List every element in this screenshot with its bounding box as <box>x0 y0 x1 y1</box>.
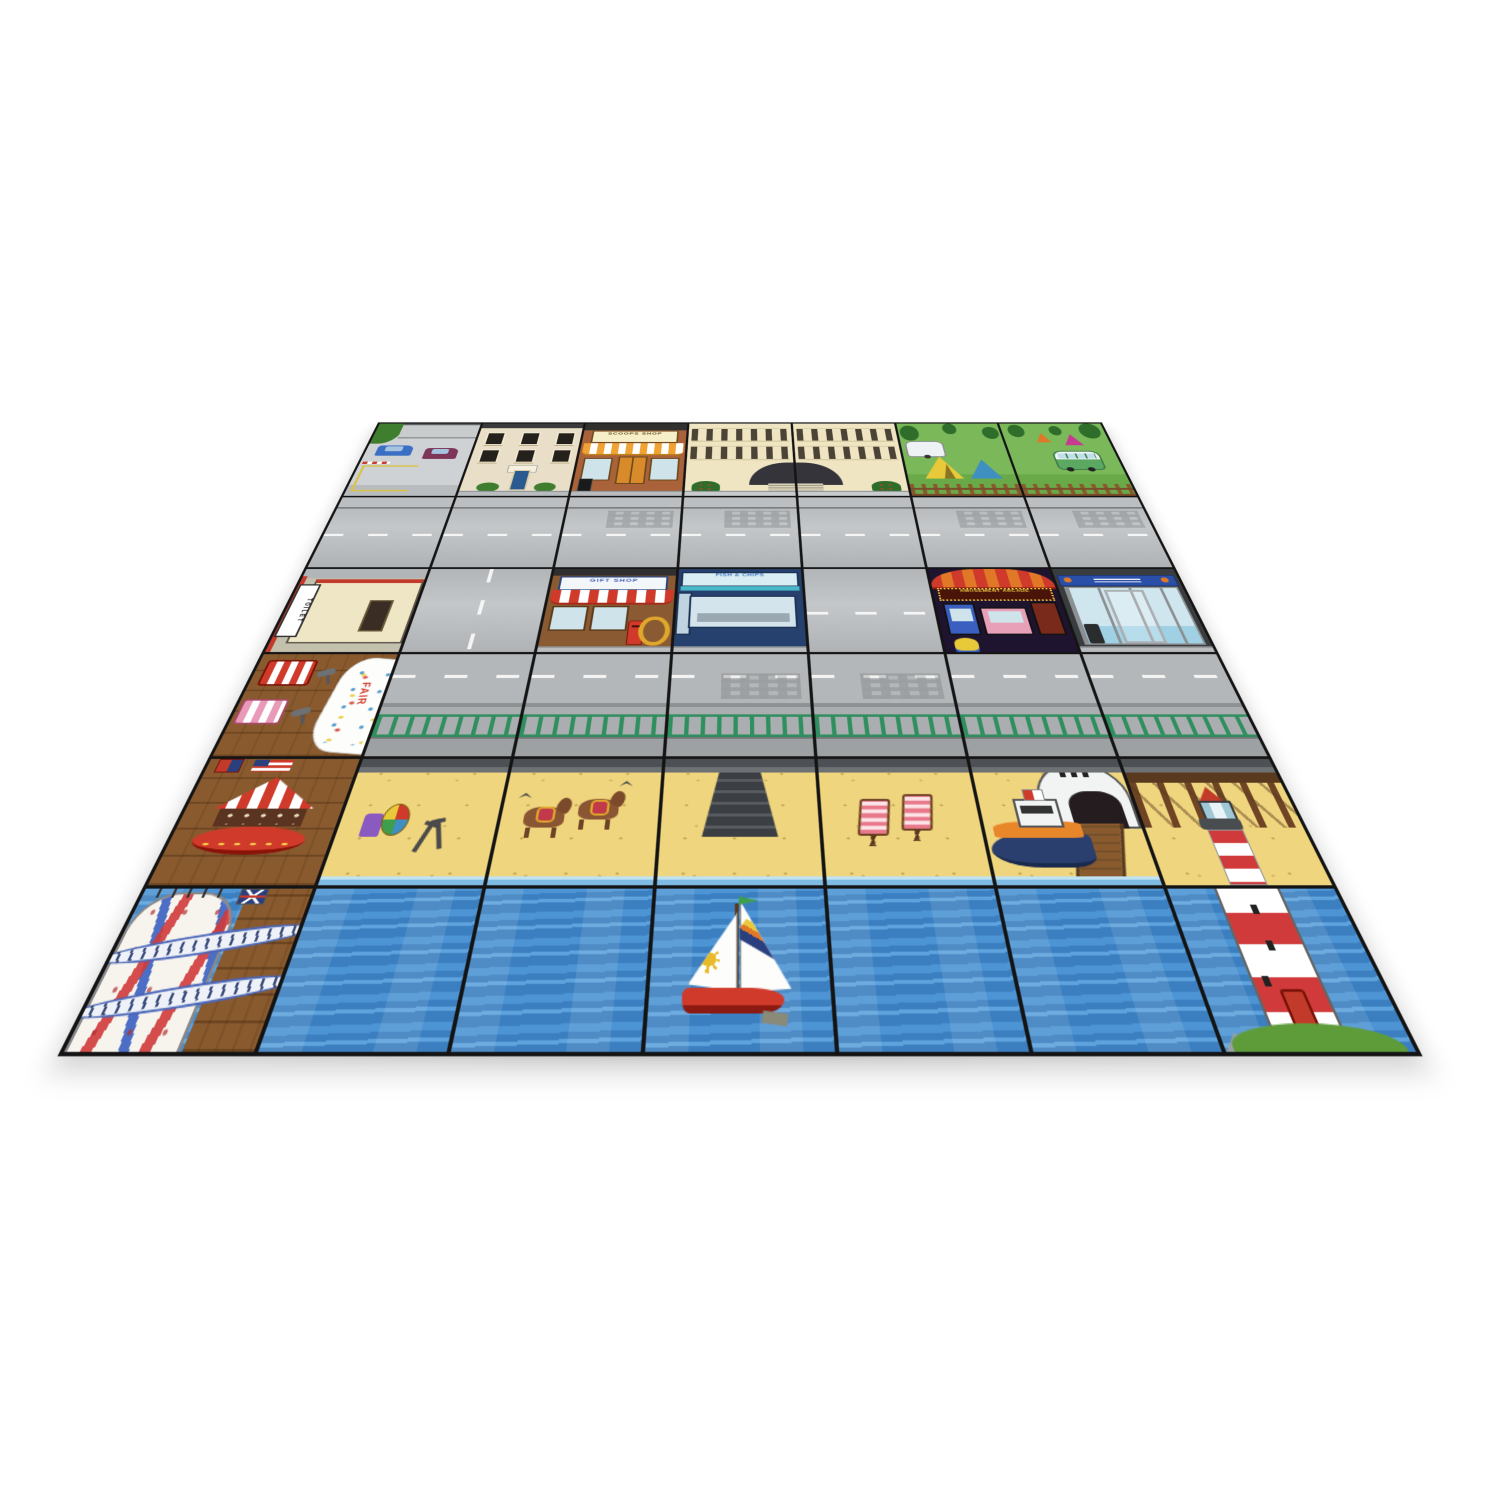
campsite-fence <box>909 484 1023 496</box>
lighthouse-gallery <box>1198 818 1244 829</box>
lifeboat-flag <box>1021 789 1045 801</box>
tile-sea <box>827 889 1028 1052</box>
seagull <box>518 792 533 799</box>
tile-road-promenade <box>666 654 814 756</box>
double-doors <box>615 457 648 484</box>
seaside-town-mat: SCOOPS SHOP <box>57 422 1422 1056</box>
road-markings <box>562 534 679 536</box>
flag-poles <box>155 889 226 898</box>
shop-window <box>547 606 589 631</box>
promenade-railing <box>667 714 812 737</box>
donkey <box>576 799 619 820</box>
telescope <box>291 707 311 718</box>
mat-wrapper: SCOOPS SHOP <box>267 236 1207 1042</box>
tile-road <box>432 497 568 567</box>
parking-bay-lines <box>350 465 419 491</box>
tile-road <box>308 497 454 567</box>
tile-toilet-block: TOILET <box>265 569 428 652</box>
saddle <box>589 800 609 816</box>
tile-road-junction <box>401 569 552 652</box>
lighthouse-column <box>1206 829 1268 886</box>
tree <box>940 424 957 435</box>
promenade-steps <box>702 770 778 836</box>
deck-chair <box>858 799 891 836</box>
window <box>519 432 541 445</box>
life-ring <box>637 616 670 646</box>
tile-sea <box>451 889 652 1052</box>
tile-road <box>556 497 682 567</box>
glass-shopfront <box>1063 587 1206 645</box>
blue-front-door <box>508 470 531 490</box>
tile-fish-and-chips: FISH & CHIPS <box>673 569 806 652</box>
road-markings <box>951 675 1088 678</box>
gift-shop-sign: GIFT SHOP <box>558 577 669 591</box>
scoops-shop-sign: SCOOPS SHOP <box>590 431 678 443</box>
road-markings <box>920 534 1037 536</box>
deck-chair <box>902 794 934 830</box>
tree <box>1006 425 1027 437</box>
road-markings <box>392 675 529 678</box>
spade <box>411 821 435 852</box>
hotel-steps <box>768 483 795 490</box>
sun-motif <box>697 946 720 974</box>
lifeboat-hull <box>989 834 1101 868</box>
tree <box>1047 426 1063 435</box>
red-striped-stall <box>256 660 319 686</box>
tile-road <box>1026 497 1172 567</box>
window <box>477 449 500 462</box>
road-markings <box>466 569 494 652</box>
orange-striped-awning <box>582 443 684 455</box>
lifeboat-cabin <box>1012 799 1065 828</box>
camper-van <box>1051 451 1107 470</box>
rudder <box>761 1011 788 1027</box>
promenade-railing <box>519 714 666 737</box>
promenade-railing <box>1104 714 1257 737</box>
parked-car-maroon <box>421 448 459 459</box>
road-markings <box>443 534 560 536</box>
carousel-canopy <box>214 777 325 808</box>
donkey <box>522 806 566 827</box>
arcade-canopy <box>928 569 1057 590</box>
road-markings <box>801 534 918 536</box>
hotel-garden <box>871 481 902 492</box>
shop-window <box>648 458 679 481</box>
tile-beach-steps <box>657 759 823 886</box>
rainbow-sail <box>740 901 792 993</box>
tile-beach-donkeys <box>487 759 662 886</box>
tile-road-promenade <box>515 654 670 756</box>
hotel-windows <box>691 428 788 442</box>
window <box>554 432 576 445</box>
tile-hotel-right <box>793 424 909 496</box>
duck-kiddie-ride <box>953 638 980 651</box>
hotel-windows <box>690 446 790 460</box>
chalkboard <box>576 479 593 492</box>
tile-scoops-shop: SCOOPS SHOP <box>571 424 687 496</box>
shop-window <box>579 458 612 481</box>
pink-striped-stall <box>231 699 290 725</box>
yellow-tent <box>920 457 964 479</box>
pennant-flag <box>738 896 758 905</box>
blue-tent <box>965 459 1003 478</box>
tree <box>898 426 920 441</box>
campsite-fence <box>1021 484 1137 496</box>
sun-sail <box>688 912 738 991</box>
tile-travel-shop <box>1052 569 1215 652</box>
fascia-band <box>680 586 800 591</box>
heraldic-flag <box>214 759 245 772</box>
lighthouse-tower <box>1211 889 1346 1036</box>
window <box>550 449 572 462</box>
caravan <box>904 441 947 457</box>
seagull <box>619 780 633 787</box>
carousel-base <box>186 826 310 854</box>
road-markings <box>682 534 799 536</box>
bush <box>475 483 500 492</box>
shop-roof <box>554 569 677 576</box>
tile-hotel-left <box>684 424 795 496</box>
entrance-canopy <box>749 462 796 485</box>
parked-car-blue <box>374 445 415 456</box>
car-park-wall <box>397 424 481 439</box>
bush <box>533 483 557 492</box>
hotel-steps <box>793 483 824 490</box>
fish-and-chips-sign: FISH & CHIPS <box>680 572 799 587</box>
pink-tent <box>1060 434 1084 445</box>
car-park-barrier <box>362 462 391 464</box>
fair-banner-text: FAIR <box>354 682 373 705</box>
telescope <box>317 667 336 677</box>
hotel-garden <box>691 481 720 492</box>
road-markings <box>1090 675 1228 678</box>
arcade-machine <box>943 604 983 636</box>
road-markings <box>807 612 935 615</box>
tile-sailboat <box>645 889 834 1052</box>
tile-road <box>803 569 942 652</box>
tile-campsite-2 <box>999 424 1136 496</box>
road-markings <box>532 675 669 678</box>
arcade-machine <box>1029 602 1067 635</box>
travel-shop-fascia <box>1056 575 1179 586</box>
window <box>484 432 507 445</box>
tile-road <box>912 497 1048 567</box>
tile-gift-shop: GIFT SHOP <box>537 569 676 652</box>
hotel-windows <box>798 446 899 460</box>
tile-road-promenade <box>810 654 965 756</box>
jetty-deck <box>1126 773 1281 784</box>
saddle <box>535 807 556 823</box>
arcade-machine <box>979 607 1035 635</box>
tile-beach-deckchairs <box>817 759 992 886</box>
beach-ball <box>376 804 413 836</box>
road-markings <box>1039 534 1157 536</box>
promenade-railing <box>814 714 961 737</box>
promenade-railing <box>371 714 521 737</box>
product-photo: SCOOPS SHOP <box>0 0 1500 1500</box>
tile-road <box>798 497 924 567</box>
spade <box>435 819 441 850</box>
promenade-railing <box>959 714 1109 737</box>
striped-flag <box>250 760 294 771</box>
lighthouse-roof <box>1193 787 1223 802</box>
flat-roof <box>481 424 584 429</box>
arcade-sign: AMUSEMENT ARCADE <box>937 588 1056 600</box>
tile-road <box>679 497 800 567</box>
road-markings <box>672 675 809 678</box>
shop-window <box>688 595 798 628</box>
window <box>514 449 537 462</box>
tree <box>980 427 1001 439</box>
carousel-horses <box>212 809 307 827</box>
orange-tent <box>1033 433 1051 443</box>
road-markings <box>323 534 441 536</box>
shop-window <box>589 606 630 631</box>
red-striped-awning <box>549 590 674 605</box>
hotel-windows <box>796 428 894 442</box>
grassy-mound <box>1224 1023 1409 1052</box>
rainbow-stripes <box>735 919 795 965</box>
road-markings <box>811 675 948 678</box>
tree <box>1076 424 1104 439</box>
entrance-canopy <box>793 462 844 485</box>
